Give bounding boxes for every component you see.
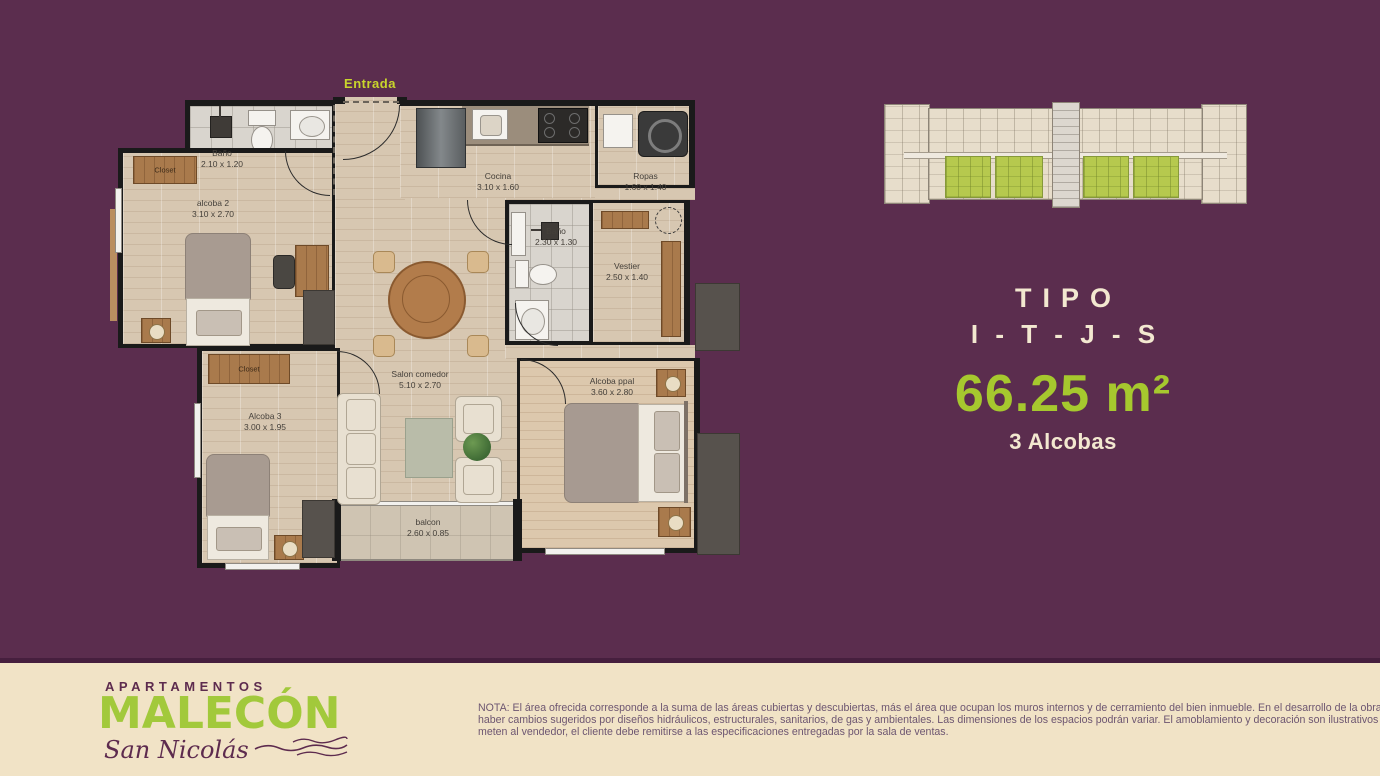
- room-dims: 2.50 x 1.40: [585, 272, 669, 283]
- closet-shelf-side: [661, 241, 681, 337]
- window: [545, 548, 665, 555]
- room-name: Cocina: [448, 171, 548, 182]
- lamp-icon: [668, 515, 684, 531]
- armchair: [455, 457, 502, 503]
- room-dims: 3.00 x 1.95: [215, 422, 315, 433]
- room-label-bath-2: Baño 2.30 x 1.30: [517, 226, 595, 247]
- desk-chair: [273, 255, 295, 289]
- room-dims: 2.10 x 1.20: [172, 159, 272, 170]
- logo-script-row: San Nicolás: [104, 735, 358, 764]
- highlighted-unit: [1133, 156, 1179, 198]
- window: [225, 563, 300, 570]
- window: [194, 403, 201, 478]
- room-label-bedroom-2: alcoba 2 3.10 x 2.70: [163, 198, 263, 219]
- unit-info-panel: TIPO I - T - J - S 66.25 m² 3 Alcobas: [880, 283, 1246, 455]
- sink-basin: [299, 116, 325, 137]
- lamp-icon: [282, 541, 298, 557]
- room-dims: 3.60 x 2.80: [552, 387, 672, 398]
- marketing-poster: { "colors": { "background": "#5b2d4e", "…: [0, 0, 1380, 776]
- bed-duvet: [185, 233, 251, 301]
- room-dims: 3.10 x 1.60: [448, 182, 548, 193]
- closet-label: Closet: [209, 365, 289, 374]
- kitchen-sink: [472, 109, 508, 140]
- room-label-bedroom-3: Alcoba 3 3.00 x 1.95: [215, 411, 315, 432]
- bed: [206, 454, 270, 560]
- room-label-master-bedroom: Alcoba ppal 3.60 x 2.80: [552, 376, 672, 397]
- fridge: [416, 108, 466, 168]
- closet: Closet: [208, 354, 290, 384]
- dining-chair: [467, 251, 489, 273]
- structural-block: [695, 283, 740, 351]
- building-core: [1052, 102, 1080, 208]
- structural-block: [697, 433, 740, 555]
- bed-duvet: [206, 454, 270, 518]
- brand-logo: APARTAMENTOS MALECÓN San Nicolás: [98, 679, 358, 764]
- burner: [569, 113, 580, 124]
- bed-master: [564, 403, 686, 501]
- entrada-label: Entrada: [330, 76, 410, 91]
- plant: [463, 433, 491, 461]
- laundry-shelf: [603, 114, 633, 148]
- unit-area: 66.25 m²: [880, 364, 1246, 424]
- room-name: Baño: [517, 226, 595, 237]
- sink: [290, 110, 330, 140]
- nightstand: [274, 535, 304, 560]
- tipo-code: I - T - J - S: [880, 319, 1246, 350]
- logo-malecon: MALECÓN: [98, 694, 358, 734]
- burner: [569, 127, 580, 138]
- sofa-cushion: [346, 399, 376, 431]
- room-label-bath-1: Baño 2.10 x 1.20: [172, 148, 272, 169]
- room-name: Ropas: [598, 171, 693, 182]
- dining-chair: [467, 335, 489, 357]
- kitchen-sink-basin: [480, 115, 502, 136]
- legal-note: NOTA: El área ofrecida corresponde a la …: [478, 703, 1380, 738]
- highlighted-unit: [995, 156, 1043, 198]
- entry-threshold: [343, 101, 399, 103]
- window: [115, 188, 122, 253]
- stove: [538, 108, 588, 143]
- room-name: Baño: [172, 148, 272, 159]
- room-label-living-dining: Salon comedor 5.10 x 2.70: [365, 369, 475, 390]
- lamp-icon: [149, 324, 165, 340]
- dining-table: [388, 261, 466, 339]
- sofa-cushion: [346, 433, 376, 465]
- sofa: [337, 393, 381, 505]
- legal-note-line: haber cambios sugeridos por diseños hidr…: [478, 715, 1380, 727]
- headboard: [684, 401, 688, 503]
- nightstand: [141, 318, 171, 343]
- balcony-post-right: [513, 499, 522, 561]
- unit-bedrooms: 3 Alcobas: [880, 429, 1246, 455]
- room-name: Alcoba 3: [215, 411, 315, 422]
- building-level-plan: [884, 100, 1247, 212]
- shower-stem: [219, 106, 221, 118]
- footer-bar: APARTAMENTOS MALECÓN San Nicolás NOTA: E…: [0, 658, 1380, 776]
- room-label-laundry: Ropas 1.60 x 1.40: [598, 171, 693, 192]
- room-dims: 5.10 x 2.70: [365, 380, 475, 391]
- closet-shelf-top: [601, 211, 649, 229]
- hall-floor: [505, 345, 695, 359]
- wave-lines-icon: [253, 735, 349, 764]
- room-dims: 2.60 x 0.85: [373, 528, 483, 539]
- room-dims: 2.30 x 1.30: [517, 237, 595, 248]
- armchair-cushion: [463, 465, 494, 495]
- entry-dashed-wall: [333, 105, 335, 195]
- rug: [405, 418, 453, 478]
- bed-pillow: [654, 411, 680, 451]
- room-label-balcony: balcon 2.60 x 0.85: [373, 517, 483, 538]
- tipo-label: TIPO: [880, 283, 1246, 314]
- dining-table-ring: [402, 275, 450, 323]
- room-label-walkin-closet: Vestier 2.50 x 1.40: [585, 261, 669, 282]
- room-dims: 3.10 x 2.70: [163, 209, 263, 220]
- bed: [185, 233, 251, 346]
- logo-san-nicolas: San Nicolás: [104, 736, 249, 764]
- structural-block: [302, 500, 335, 558]
- nightstand: [658, 507, 691, 537]
- dining-chair: [373, 251, 395, 273]
- highlighted-unit: [1083, 156, 1129, 198]
- room-name: balcon: [373, 517, 483, 528]
- structural-block: [303, 290, 335, 345]
- bed-pillow: [654, 453, 680, 493]
- toilet-tank: [515, 260, 529, 288]
- toilet-tank: [248, 110, 276, 126]
- toilet-bowl: [529, 264, 557, 285]
- room-name: Salon comedor: [365, 369, 475, 380]
- room-label-kitchen: Cocina 3.10 x 1.60: [448, 171, 548, 192]
- bed-pillow: [196, 310, 242, 336]
- burner: [544, 127, 555, 138]
- bed-duvet: [564, 403, 640, 503]
- dining-chair: [373, 335, 395, 357]
- sofa-cushion: [346, 467, 376, 499]
- shower-icon: [210, 116, 232, 138]
- room-name: Alcoba ppal: [552, 376, 672, 387]
- washer: [638, 111, 688, 157]
- bed-pillow: [216, 527, 262, 551]
- armchair-cushion: [463, 404, 494, 434]
- apartment-floor-plan: Baño 2.10 x 1.20 Cocina 3.10 x 1.60 Ropa…: [115, 93, 740, 573]
- legal-note-line: meten al vendedor, el cliente debe remit…: [478, 727, 1380, 739]
- room-dims: 1.60 x 1.40: [598, 182, 693, 193]
- room-name: Vestier: [585, 261, 669, 272]
- burner: [544, 113, 555, 124]
- highlighted-unit: [945, 156, 991, 198]
- room-name: alcoba 2: [163, 198, 263, 209]
- washer-drum: [648, 119, 682, 153]
- column-dashed-circle: [655, 207, 682, 234]
